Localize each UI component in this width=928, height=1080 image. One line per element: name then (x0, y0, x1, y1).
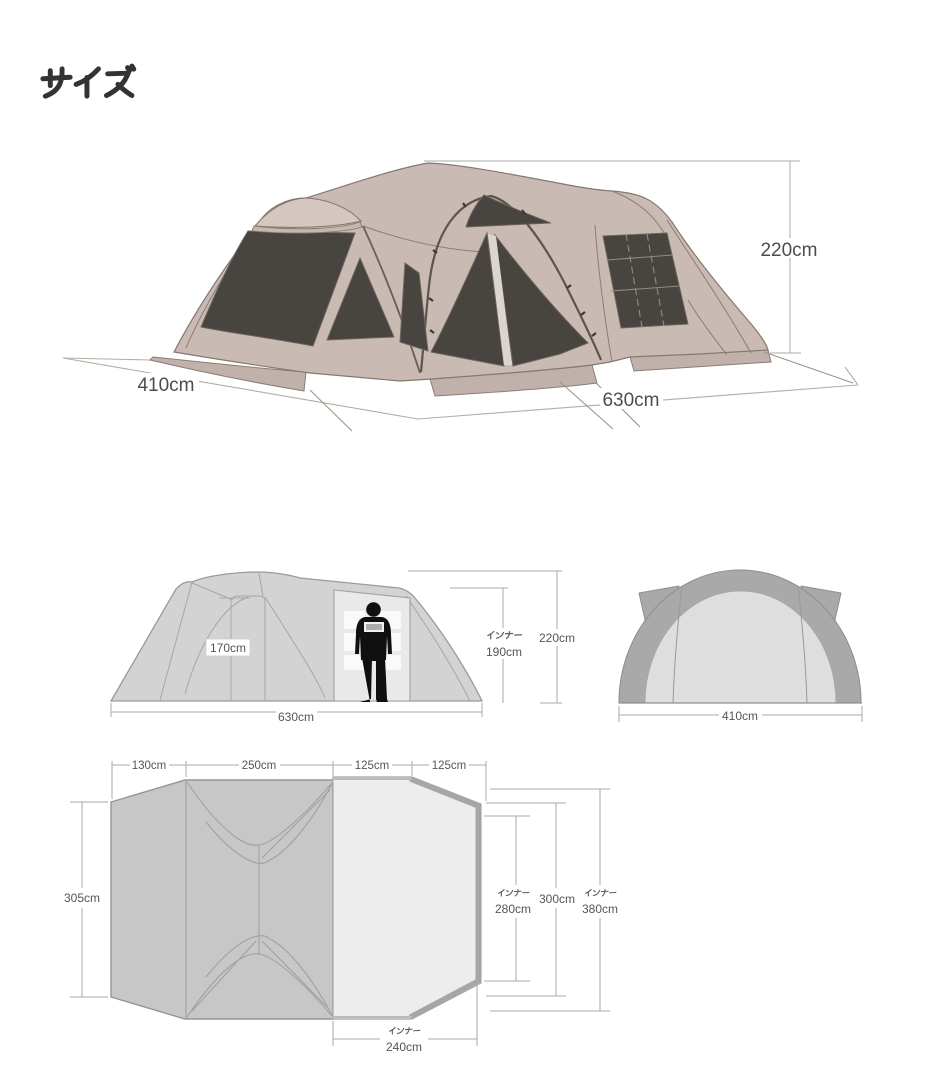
svg-text:240cm: 240cm (386, 1040, 422, 1054)
svg-text:130cm: 130cm (132, 760, 167, 772)
svg-text:125cm: 125cm (355, 760, 390, 772)
svg-text:410cm: 410cm (137, 375, 194, 396)
svg-text:380cm: 380cm (582, 902, 618, 916)
svg-text:410cm: 410cm (722, 709, 758, 723)
svg-text:170cm: 170cm (210, 641, 246, 655)
svg-text:305cm: 305cm (64, 891, 100, 905)
svg-text:250cm: 250cm (242, 760, 277, 772)
svg-text:220cm: 220cm (539, 631, 575, 645)
svg-text:220cm: 220cm (760, 240, 817, 261)
svg-text:630cm: 630cm (278, 710, 314, 724)
svg-text:125cm: 125cm (432, 760, 467, 772)
svg-text:630cm: 630cm (602, 390, 659, 411)
svg-text:190cm: 190cm (486, 645, 522, 659)
svg-text:300cm: 300cm (539, 892, 575, 906)
svg-text:280cm: 280cm (495, 902, 531, 916)
